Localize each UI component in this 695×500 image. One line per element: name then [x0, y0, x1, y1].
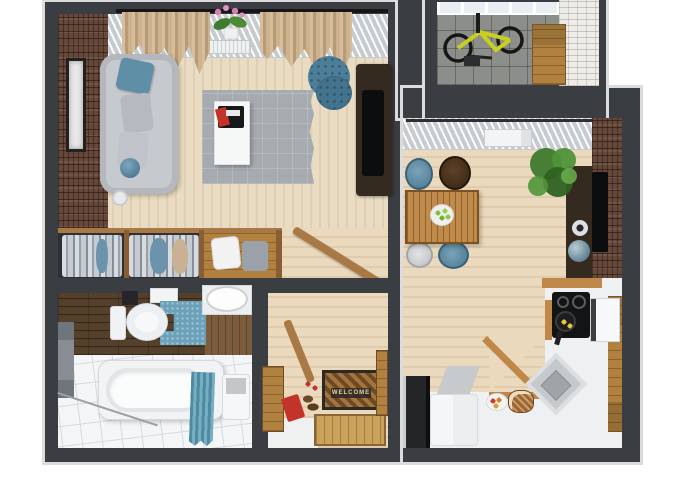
wardrobe-divider-2 [199, 230, 204, 280]
floor-lamp [112, 190, 128, 206]
wall-tv [592, 172, 608, 252]
washbasin [206, 286, 248, 312]
frying-pan [555, 311, 576, 332]
burner-2 [572, 295, 586, 309]
balcony-cabinet [532, 24, 566, 85]
picture-frame [66, 58, 86, 152]
door-threshold [314, 414, 386, 446]
sink-basin [540, 370, 571, 401]
magazine-page [226, 110, 240, 116]
hallway-corner-cabinet [376, 350, 388, 416]
toilet-tank [110, 306, 126, 340]
balcony-mat [464, 56, 480, 66]
shoes-pair [302, 394, 322, 412]
wardrobe-clothes-1 [62, 235, 122, 277]
speaker-large [568, 240, 590, 262]
toilet-shelf [122, 291, 138, 305]
bread-basket [508, 390, 534, 413]
dining-chair-brown [439, 156, 471, 190]
kitchen-curtain-rod [406, 119, 618, 122]
sofa-cushion-blue [115, 57, 155, 95]
wall-hooks-red [304, 380, 318, 392]
fruit-plate [486, 393, 508, 411]
ottoman-pouf-small [316, 76, 352, 110]
dining-chair-blue-1 [405, 158, 433, 190]
laundry-unit-lid [226, 378, 246, 394]
garment-tan [172, 239, 188, 274]
dining-chair-gray [406, 242, 433, 268]
oven-unit [590, 298, 620, 342]
sofa-cushion-gray-1 [120, 92, 154, 133]
bicycle [440, 12, 535, 67]
tv-living [362, 90, 384, 176]
counter-wood-edge-top [542, 278, 602, 288]
potted-plant [524, 142, 582, 208]
storage-box-gray [242, 241, 268, 271]
toilet-bowl [126, 303, 168, 341]
wardrobe-divider-1 [124, 230, 129, 280]
shower-curtain [189, 372, 216, 447]
side-lamp [120, 158, 140, 178]
counter-wood-edge-vertical [545, 300, 552, 340]
bathroom-side-shelf [58, 322, 74, 398]
fruit-bowl [430, 204, 454, 226]
floor-plan-canvas: WELCOME [0, 0, 695, 500]
speaker-small [572, 220, 588, 236]
dining-chair-blue-2 [438, 241, 469, 269]
burner-1 [557, 296, 569, 308]
garment-blue [150, 238, 168, 274]
welcome-mat-label: WELCOME [325, 388, 377, 398]
suitcase-white [210, 236, 241, 271]
refrigerator [430, 394, 478, 446]
garment-blue-small [96, 239, 108, 273]
radiator [205, 40, 251, 54]
orchid-plant [208, 2, 252, 42]
storage-white-box [150, 288, 178, 303]
door-leaf [426, 376, 430, 448]
welcome-mat: WELCOME [322, 370, 380, 410]
